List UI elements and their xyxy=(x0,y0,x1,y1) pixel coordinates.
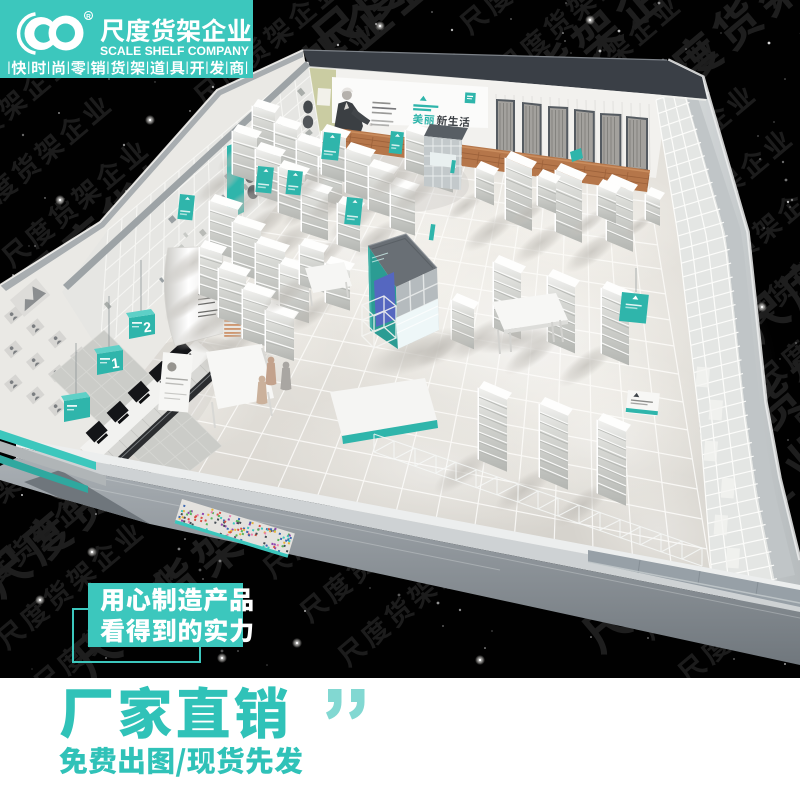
svg-text:SCALE SHELF COMPANY: SCALE SHELF COMPANY xyxy=(100,44,250,58)
svg-text:R: R xyxy=(86,13,91,20)
